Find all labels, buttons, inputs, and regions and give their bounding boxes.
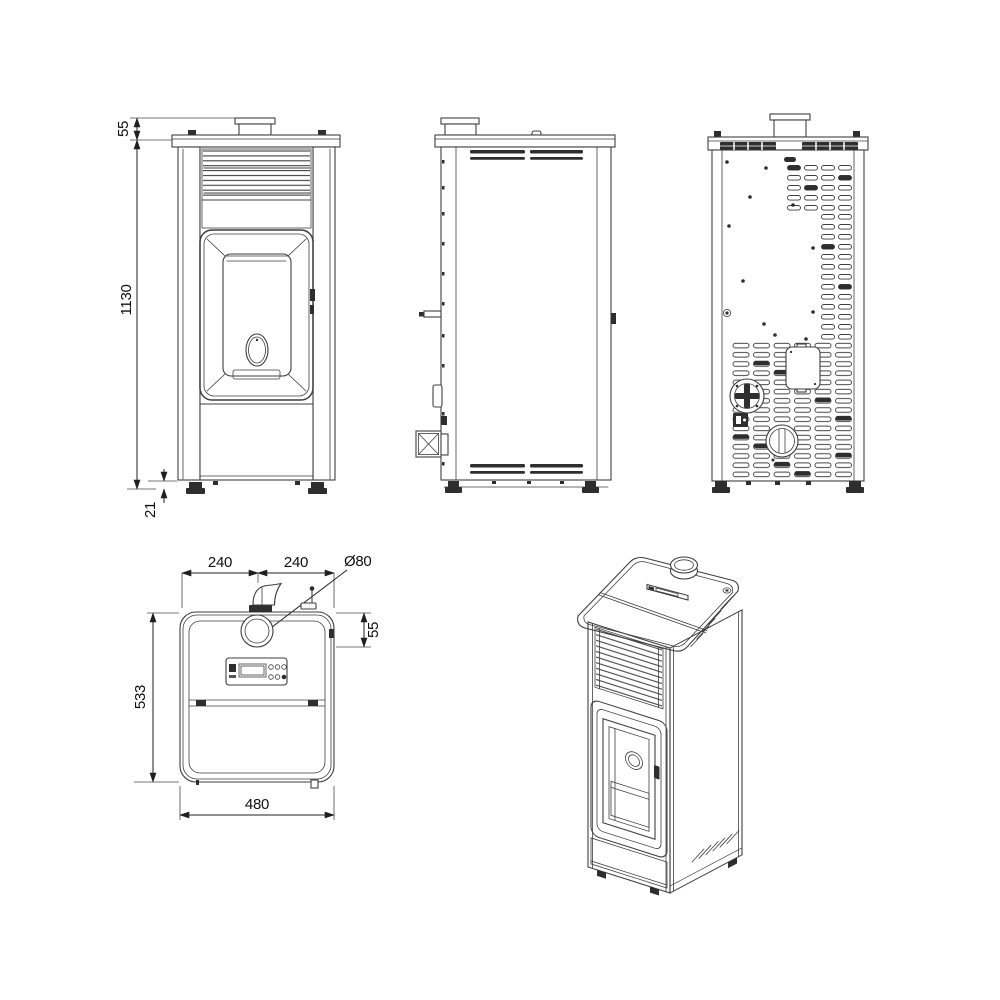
side-view <box>416 118 616 493</box>
back-small-slot <box>784 157 796 162</box>
control-panel-button <box>269 675 274 680</box>
dim-label-width: 480 <box>245 796 269 813</box>
front-door-hinge-bottom <box>310 305 314 314</box>
front-flue-collar <box>235 118 275 135</box>
persp-door-latch <box>654 765 660 780</box>
back-access-plate <box>786 344 820 392</box>
back-view <box>708 114 868 493</box>
front-louver-grille <box>202 149 311 200</box>
top-front-tick <box>196 780 199 785</box>
dim-label-overall-height: 1130 <box>118 284 135 315</box>
persp-antenna-hole <box>723 588 731 593</box>
side-junction-plate <box>433 385 442 407</box>
dim-label-flue-offset: 55 <box>365 622 382 638</box>
back-flue-collar <box>770 114 810 137</box>
control-panel-button <box>269 665 274 670</box>
top-door-latch <box>329 629 334 638</box>
side-probe <box>424 311 441 317</box>
dim-label-flue-diameter: Ø80 <box>344 553 371 570</box>
top-flue-pipe <box>241 615 273 647</box>
side-air-intake <box>416 431 448 457</box>
back-fan-flange <box>730 379 764 413</box>
top-control-panel <box>226 658 287 685</box>
top-front-tab <box>311 780 318 788</box>
dim-label-depth: 533 <box>132 685 149 709</box>
side-flue-collar <box>441 118 479 135</box>
control-panel-badge <box>229 664 236 672</box>
control-panel-button <box>275 665 280 670</box>
side-power-socket <box>441 416 447 425</box>
persp-flue-collar <box>671 557 698 579</box>
dim-label-foot-clearance: 21 <box>142 502 159 518</box>
control-panel-button <box>275 675 280 680</box>
side-door-latch <box>611 313 616 324</box>
back-power-socket <box>733 413 748 427</box>
technical-drawing-sheet: 55 1130 21 <box>0 0 1000 1000</box>
control-panel-button <box>282 665 287 670</box>
dim-label-flue-left: 240 <box>208 554 232 571</box>
dim-label-collar-height: 55 <box>115 121 132 137</box>
dim-label-flue-right: 240 <box>284 554 308 571</box>
control-panel-button <box>282 675 287 680</box>
front-door-hinge-top <box>310 289 315 301</box>
side-body-panel <box>441 147 611 480</box>
